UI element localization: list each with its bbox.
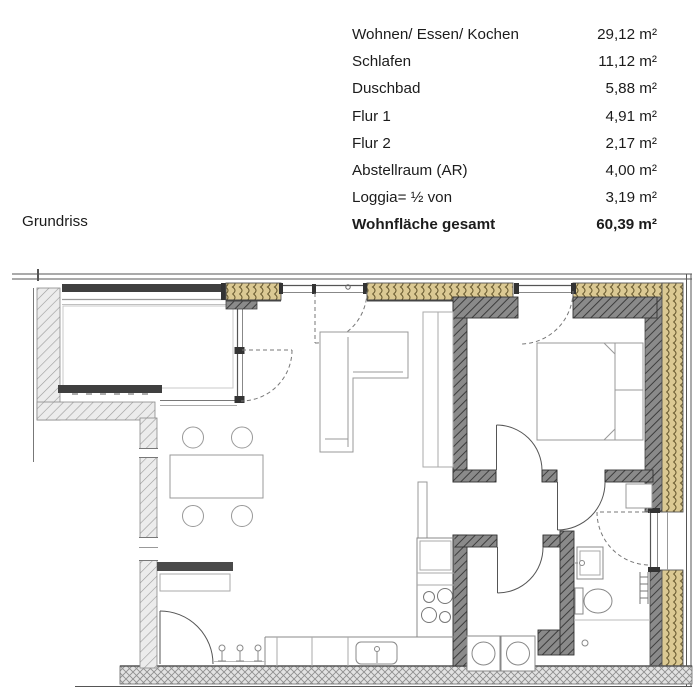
storage-room [467,636,535,671]
storage-west-wall [453,535,467,666]
kitchen-upper-cabinet [420,541,451,570]
service-posts [214,645,266,662]
hall-wall-seg-3 [605,470,653,482]
west-wall [139,418,158,668]
sideboard-body [160,574,230,591]
post [254,645,262,661]
chair [183,506,204,527]
dining-table [170,455,263,498]
loggia-south-wall [37,402,155,420]
loggia-west-wall [37,288,60,420]
entrance-door [160,611,213,664]
wardrobe [423,312,453,467]
chair [232,506,253,527]
sideboard [157,562,233,591]
storage-door [498,547,544,593]
kitchen [265,482,454,666]
bedroom-door [497,425,543,470]
floor-plan-svg [0,0,697,691]
towel-radiator [640,572,648,604]
bathroom-window-door-swing [597,512,650,565]
west-wall-window-2 [139,537,158,561]
storage-north-wall-right [543,535,560,547]
chair [183,427,204,448]
bedroom-window-door-swing [520,291,573,344]
loggia-bottom-slab [58,385,162,393]
bedroom-west-wall [453,297,467,482]
post [218,645,226,661]
bathroom-west-wall [560,531,574,655]
washing-machine [467,636,500,671]
south-wall [120,661,692,684]
stove [422,589,453,623]
storage-north-wall-left [453,535,497,547]
loggia-floor [63,306,233,388]
bedroom-window [514,283,576,294]
hall-wall-seg-2 [542,470,557,482]
kitchen-side-panel [418,482,427,538]
chair [232,427,253,448]
bathroom [574,484,652,646]
kitchen-tall-units [417,538,454,637]
living-room-window [279,283,367,294]
floor-plan [0,0,697,691]
floor-drain [582,640,588,646]
bathroom-window [648,508,668,572]
bath-cabinet [626,484,652,508]
kitchen-sink [356,642,397,664]
sideboard-counter [157,562,233,571]
hall-wall-seg-1 [453,470,496,482]
bedroom-north-wall-left [453,297,518,318]
loggia-top-slab [62,284,232,292]
bed [537,343,643,440]
dining-set [170,427,263,527]
bedroom-north-wall-right [573,297,657,318]
west-wall-window-1 [139,448,158,458]
toilet [575,588,612,614]
dryer [501,636,535,671]
post [236,645,244,661]
bathroom-wall-jog [538,630,560,655]
sofa [320,332,408,452]
loggia [34,284,245,462]
loggia-window-door-swing [241,350,292,401]
washbasin [575,547,603,579]
